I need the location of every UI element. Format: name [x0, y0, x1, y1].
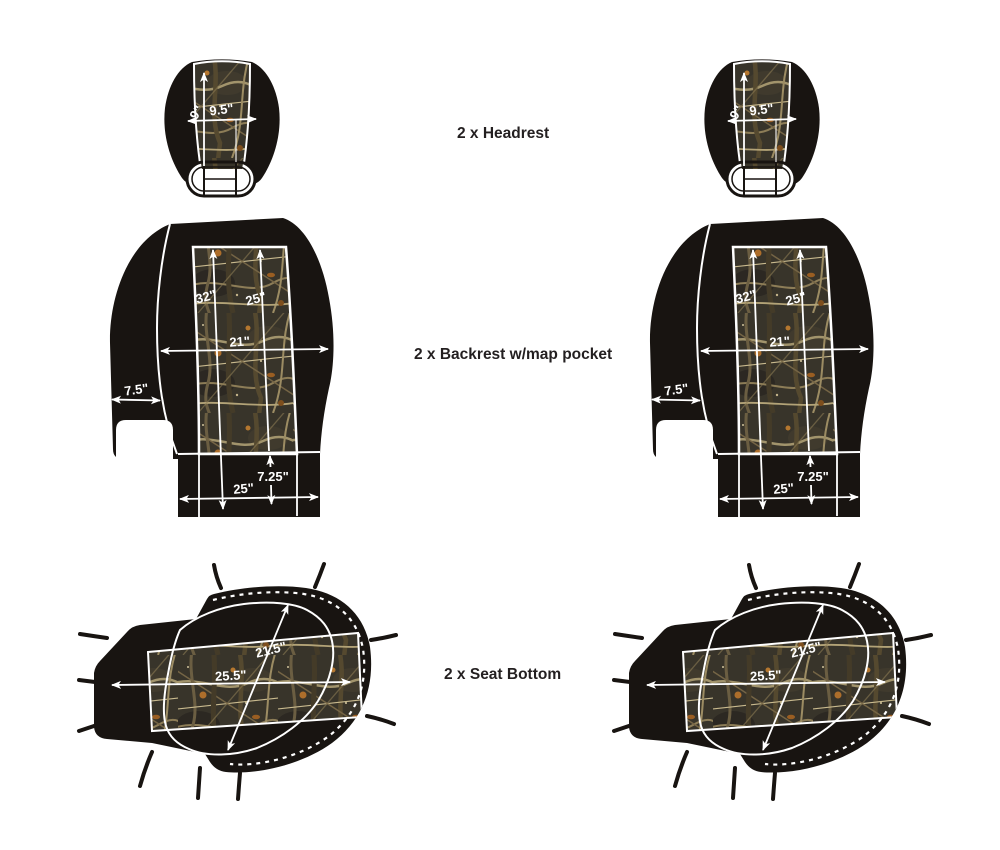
- caption-backrest: 2 x Backrest w/map pocket: [414, 346, 612, 363]
- seat-piece-right: [614, 564, 931, 799]
- seat-cover-cutting-diagram: 9" 9.5" 32" 25" 21" 7.5" 7.25" 25": [0, 0, 1000, 850]
- backrest-piece-right: [650, 218, 874, 517]
- caption-headrest: 2 x Headrest: [457, 125, 549, 142]
- caption-seat: 2 x Seat Bottom: [444, 666, 561, 683]
- headrest-piece-right: [704, 59, 819, 196]
- backrest-piece-left: [110, 218, 334, 517]
- headrest-piece-left: [164, 59, 279, 196]
- diagram-canvas: 9" 9.5" 32" 25" 21" 7.5" 7.25" 25": [0, 0, 1000, 850]
- seat-piece-left: [79, 564, 396, 799]
